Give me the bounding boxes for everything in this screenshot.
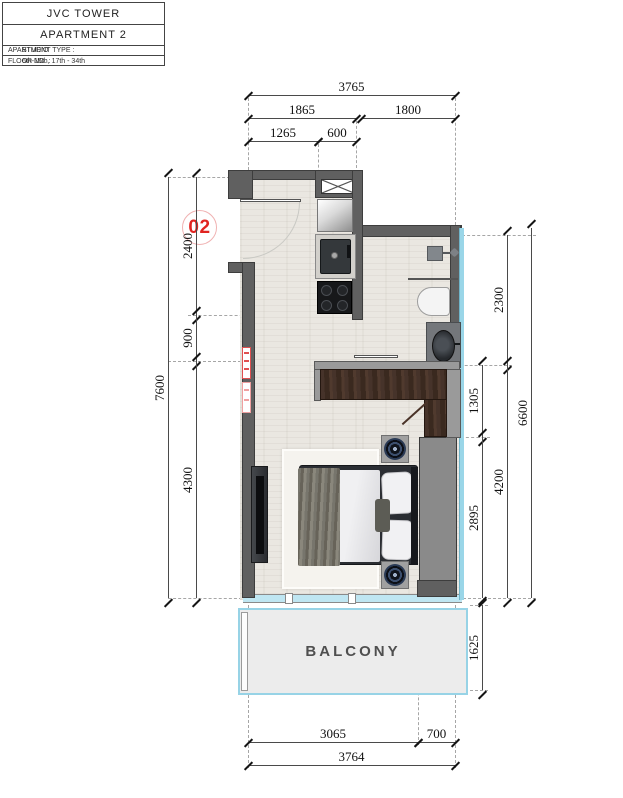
structural-column <box>419 437 457 597</box>
bed-headboard <box>411 467 418 565</box>
apartment-type-row: APARTMENT TYPE : STUDIO <box>3 46 164 56</box>
floor-no-row: FLOOR NO. : 6th-15th, 17th - 34th <box>3 56 164 66</box>
dim-balcony-depth: 1625 <box>482 605 483 690</box>
dim-top-left: 1865 <box>248 118 356 119</box>
faucet-icon <box>347 245 351 258</box>
bathroom-door-leaf <box>354 355 398 358</box>
extension-line <box>168 177 230 178</box>
dim-right-total: 6600 <box>531 228 532 598</box>
window-mullion <box>348 593 356 604</box>
bedside-table <box>381 561 409 589</box>
apartment-title-text: APARTMENT 2 <box>40 29 127 41</box>
burner <box>337 300 348 311</box>
dim-top-inner-left: 1265 <box>248 141 318 142</box>
burner <box>321 300 332 311</box>
dim-left-bottom: 4300 <box>196 361 197 598</box>
dim-label: 6600 <box>515 400 531 426</box>
symbol-mark <box>244 352 249 354</box>
dim-label: 2400 <box>180 233 196 259</box>
apartment-type-value: STUDIO <box>22 47 48 54</box>
floor-no-value: 6th-15th, 17th - 34th <box>22 58 85 65</box>
wash-basin <box>432 330 455 362</box>
project-title-text: JVC TOWER <box>47 8 120 20</box>
balcony-divider-panel <box>241 612 248 691</box>
dim-bottom-main: 3065 <box>248 742 418 743</box>
bed-throw-blanket <box>298 468 340 566</box>
dim-top-inner-right: 600 <box>318 141 356 142</box>
dim-top-right: 1800 <box>361 118 455 119</box>
burner <box>337 285 348 296</box>
window-mullion <box>285 593 293 604</box>
extension-line <box>188 315 248 316</box>
symbol-mark <box>244 360 249 362</box>
dim-label: 1305 <box>466 388 482 414</box>
wardrobe-side-band <box>446 369 461 438</box>
services-riser <box>242 382 251 413</box>
dim-right-bed-zone: 2895 <box>482 437 483 598</box>
dim-right-top: 2300 <box>507 235 508 365</box>
duct-shaft <box>321 179 355 194</box>
kitchen-sink-counter <box>315 234 356 279</box>
burner <box>321 285 332 296</box>
fridge <box>317 199 353 232</box>
dim-label: 600 <box>327 125 347 141</box>
dim-label: 700 <box>427 726 447 742</box>
dim-label: 2300 <box>491 287 507 313</box>
dim-label: 3065 <box>320 726 346 742</box>
dim-left-top: 2400 <box>196 177 197 315</box>
symbol-mark <box>244 399 249 401</box>
dim-label: 7600 <box>152 375 168 401</box>
tv <box>251 466 268 563</box>
dim-right-lower: 4200 <box>507 365 508 598</box>
extension-line <box>168 598 242 599</box>
floor-plan-sheet: JVC TOWER APARTMENT 2 APARTMENT TYPE : S… <box>0 0 623 798</box>
dim-label: 2895 <box>466 505 482 531</box>
fire-hose-cabinet <box>242 347 251 379</box>
dim-label: 1265 <box>270 125 296 141</box>
apartment-title: APARTMENT 2 <box>3 25 164 46</box>
shower-head-icon <box>427 246 443 261</box>
project-title: JVC TOWER <box>3 3 164 25</box>
extension-line <box>462 235 536 236</box>
wall-top-left-block <box>228 170 253 199</box>
dim-label: 3765 <box>339 79 365 95</box>
dim-top-total: 3765 <box>248 95 455 96</box>
balcony-label: BALCONY <box>305 643 400 660</box>
symbol-mark <box>244 368 249 370</box>
wall-bathroom-top <box>362 225 462 237</box>
wardrobe-side-run <box>424 399 447 437</box>
table-lamp-icon <box>384 438 406 460</box>
title-block: JVC TOWER APARTMENT 2 APARTMENT TYPE : S… <box>2 2 165 66</box>
table-lamp-icon <box>384 564 406 586</box>
dim-label: 3764 <box>339 749 365 765</box>
dim-bottom-side: 700 <box>418 742 455 743</box>
extension-line <box>248 98 249 170</box>
cushion <box>375 499 390 532</box>
dim-label: 1625 <box>466 635 482 661</box>
cooktop <box>317 281 352 314</box>
symbol-mark <box>244 389 249 391</box>
wardrobe-top-run <box>320 369 447 400</box>
bedside-table <box>381 435 409 463</box>
dim-label: 900 <box>180 328 196 348</box>
dim-label: 1800 <box>395 102 421 118</box>
balcony: BALCONY <box>238 608 468 695</box>
bed <box>299 465 418 565</box>
tv-screen <box>256 476 264 554</box>
dim-label: 1865 <box>289 102 315 118</box>
wall-bottom-right-block <box>417 580 457 597</box>
extension-line <box>458 598 536 599</box>
basin-tap-icon <box>454 343 460 345</box>
sink-drain <box>331 252 338 259</box>
dim-label: 4200 <box>491 469 507 495</box>
dim-left-total: 7600 <box>168 177 169 598</box>
extension-line <box>356 121 357 168</box>
shower-partition <box>408 278 458 280</box>
dim-right-upper-mid: 1305 <box>482 365 483 437</box>
shaft-cross-icon <box>322 180 354 193</box>
dim-bottom-total: 3764 <box>248 765 455 766</box>
dim-label: 4300 <box>180 467 196 493</box>
toilet <box>417 287 450 316</box>
